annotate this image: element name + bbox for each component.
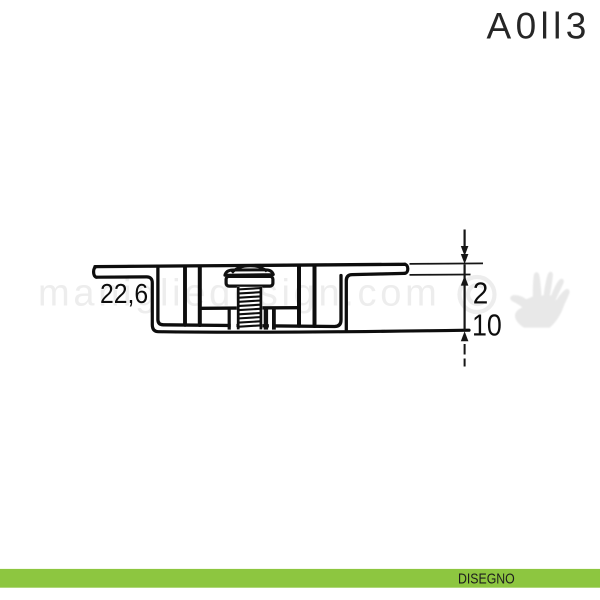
svg-text:2: 2 (473, 276, 489, 311)
svg-text:A0ll3: A0ll3 (487, 6, 591, 47)
svg-text:DISEGNO: DISEGNO (458, 570, 515, 586)
svg-text:22,6: 22,6 (100, 278, 148, 310)
svg-text:10: 10 (472, 309, 502, 343)
